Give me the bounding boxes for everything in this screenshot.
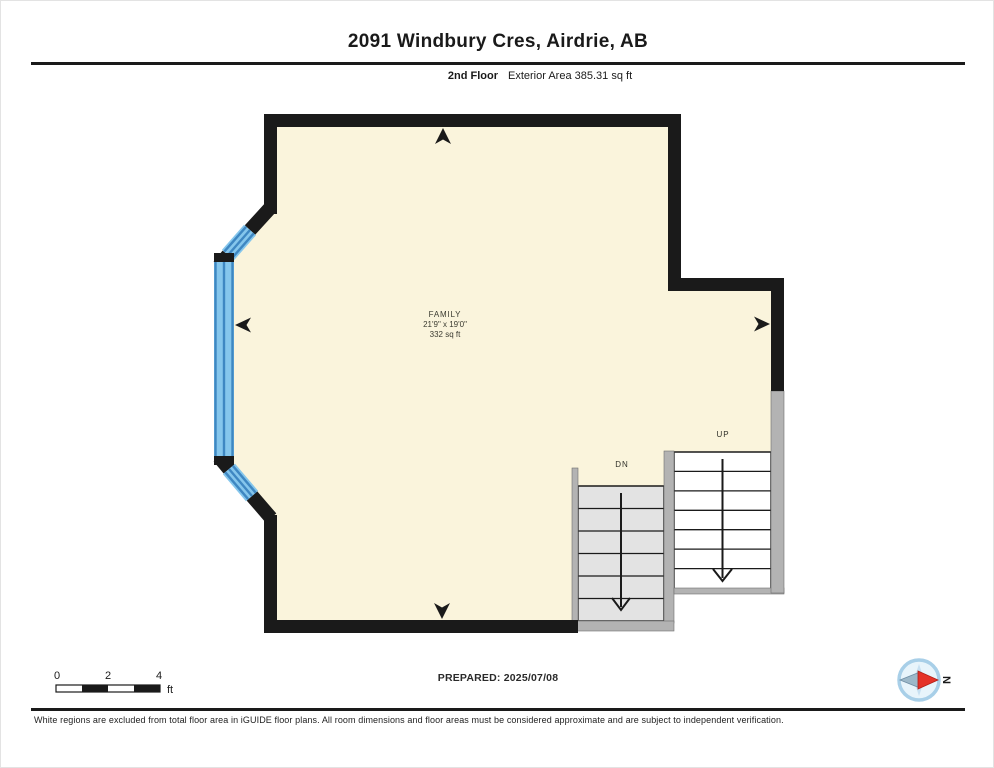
notch-wall bbox=[668, 278, 784, 291]
upper-left-wall bbox=[264, 114, 277, 214]
scale-bar-segment bbox=[82, 685, 108, 692]
top-wall bbox=[264, 114, 681, 127]
window-top-cap bbox=[214, 253, 234, 262]
up-bottom-knee-wall bbox=[674, 588, 784, 594]
prepared-date: PREPARED: 2025/07/08 bbox=[1, 672, 994, 684]
stairs-dn-label: DN bbox=[615, 460, 629, 469]
floor-plan-canvas: FAMILY 21'9" x 19'0" 332 sq ft DN UP 0 2… bbox=[1, 1, 994, 768]
up-staircase bbox=[674, 452, 771, 591]
floorplan-page: 2091 Windbury Cres, Airdrie, AB 2nd Floo… bbox=[0, 0, 994, 768]
lower-left-wall bbox=[264, 515, 277, 633]
right-wall bbox=[771, 278, 784, 391]
dn-bottom-knee-wall bbox=[572, 621, 674, 631]
stair-divider-wall bbox=[664, 451, 674, 623]
footer-divider bbox=[31, 708, 965, 711]
window-bottom-cap bbox=[214, 456, 234, 465]
dn-staircase bbox=[578, 486, 664, 621]
upper-right-wall bbox=[668, 114, 681, 291]
scale-bar-segment bbox=[134, 685, 160, 692]
room-dimensions-label: 21'9" x 19'0" bbox=[423, 320, 467, 329]
right-knee-wall bbox=[771, 391, 784, 593]
bottom-wall bbox=[264, 620, 578, 633]
left-vertical-window bbox=[214, 253, 234, 465]
dn-left-knee-wall bbox=[572, 468, 578, 623]
stairs-up-label: UP bbox=[716, 430, 729, 439]
scale-unit-label: ft bbox=[167, 684, 173, 696]
disclaimer-text: White regions are excluded from total fl… bbox=[34, 715, 974, 725]
room-area-label: 332 sq ft bbox=[430, 330, 461, 339]
room-name-label: FAMILY bbox=[429, 310, 462, 319]
